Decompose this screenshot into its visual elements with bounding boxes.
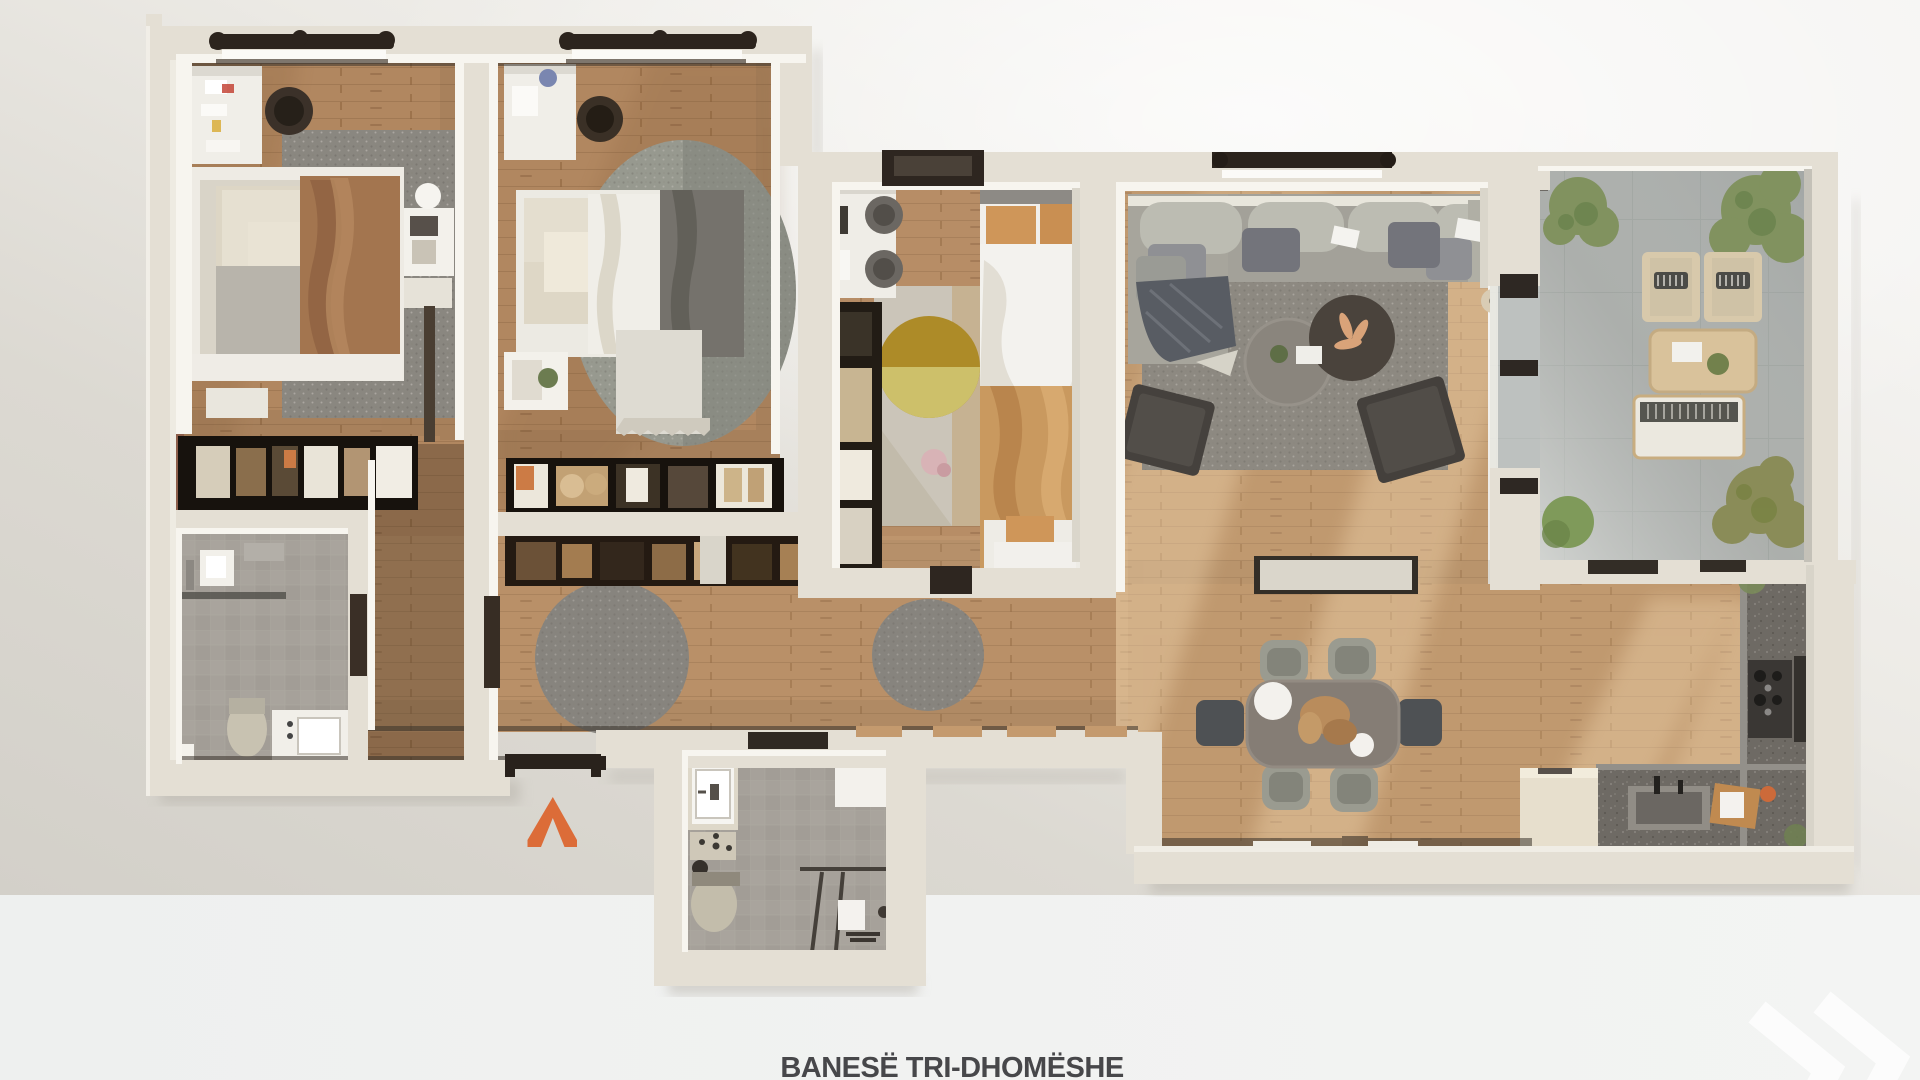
svg-text:BANESË TRI-DHOMËSHE: BANESË TRI-DHOMËSHE (780, 1051, 1124, 1080)
